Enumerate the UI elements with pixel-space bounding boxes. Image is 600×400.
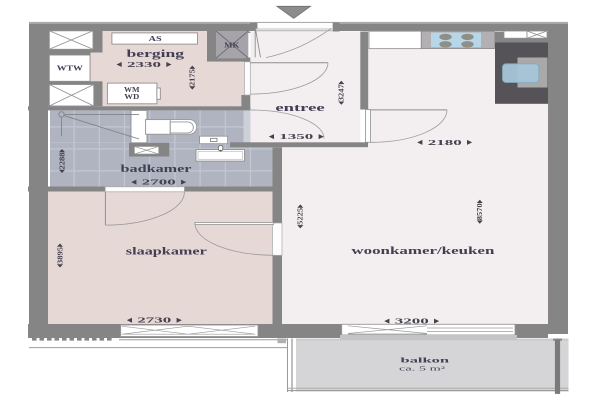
svg-text:ca. 5 m²: ca. 5 m² <box>399 365 445 372</box>
svg-text:5225: 5225 <box>297 207 305 225</box>
svg-text:2175: 2175 <box>189 68 197 86</box>
svg-text:slaapkamer: slaapkamer <box>126 246 208 257</box>
svg-text:WTW: WTW <box>57 65 83 73</box>
svg-text:badkamer: badkamer <box>121 164 193 175</box>
svg-text:2700: 2700 <box>142 180 178 187</box>
svg-text:3247: 3247 <box>338 84 346 102</box>
svg-text:entree: entree <box>275 103 325 114</box>
svg-text:3200: 3200 <box>395 319 431 326</box>
svg-text:2180: 2180 <box>428 140 464 147</box>
svg-text:1350: 1350 <box>279 134 315 141</box>
svg-text:2730: 2730 <box>137 318 173 325</box>
svg-text:2288: 2288 <box>58 152 66 170</box>
svg-text:berging: berging <box>127 49 186 60</box>
svg-text:MK: MK <box>224 40 239 49</box>
svg-text:WD: WD <box>124 93 139 101</box>
svg-text:3895: 3895 <box>56 246 64 264</box>
svg-text:balkon: balkon <box>401 356 451 365</box>
svg-text:8570: 8570 <box>476 203 484 221</box>
svg-text:2330: 2330 <box>127 62 163 69</box>
svg-text:woonkamer/keuken: woonkamer/keuken <box>351 246 494 257</box>
svg-text:AS: AS <box>149 35 162 43</box>
